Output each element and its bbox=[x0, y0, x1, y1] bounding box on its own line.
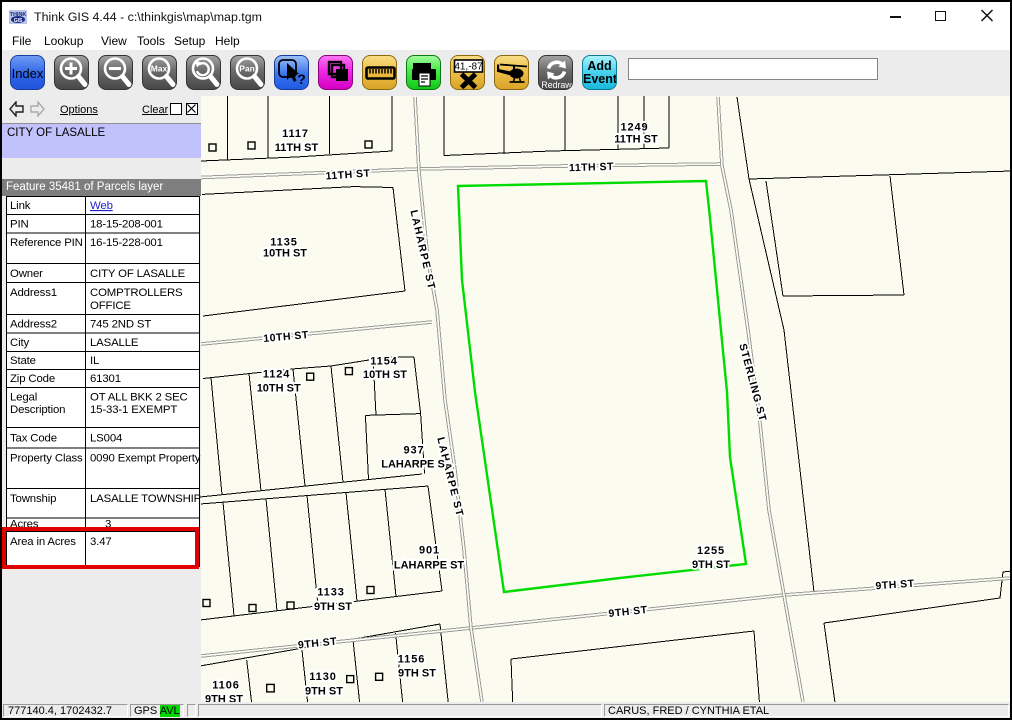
svg-text:9TH ST: 9TH ST bbox=[205, 694, 243, 703]
svg-text:City: City bbox=[10, 337, 29, 349]
svg-text:11TH ST: 11TH ST bbox=[275, 142, 319, 154]
svg-text:1106: 1106 bbox=[212, 680, 239, 692]
svg-text:LS004: LS004 bbox=[90, 433, 122, 445]
svg-text:Link: Link bbox=[10, 200, 31, 212]
svg-text:901: 901 bbox=[419, 545, 440, 557]
svg-text:Property Class: Property Class bbox=[10, 453, 83, 465]
svg-text:COMPTROLLERS: COMPTROLLERS bbox=[90, 287, 183, 299]
svg-text:10TH ST: 10TH ST bbox=[257, 383, 301, 395]
svg-text:Address2: Address2 bbox=[10, 319, 57, 331]
svg-text:LAHARPE ST: LAHARPE ST bbox=[394, 560, 465, 572]
svg-text:Redraw: Redraw bbox=[541, 80, 572, 90]
svg-text:11TH ST: 11TH ST bbox=[569, 161, 614, 175]
svg-text:1156: 1156 bbox=[398, 654, 425, 666]
svg-text:Tax Code: Tax Code bbox=[10, 433, 57, 445]
svg-text:9TH ST: 9TH ST bbox=[314, 601, 352, 613]
svg-text:Description: Description bbox=[10, 404, 65, 416]
svg-text:Reference PIN: Reference PIN bbox=[10, 237, 83, 249]
svg-text:OFFICE: OFFICE bbox=[90, 300, 131, 312]
svg-text:OT ALL BKK 2 SEC: OT ALL BKK 2 SEC bbox=[90, 392, 188, 404]
svg-text:18-15-208-001: 18-15-208-001 bbox=[90, 219, 163, 231]
svg-text:745 2ND ST: 745 2ND ST bbox=[90, 319, 151, 331]
svg-text:0090 Exempt Property: 0090 Exempt Property bbox=[90, 453, 201, 465]
svg-text:9TH ST: 9TH ST bbox=[692, 559, 730, 571]
svg-text:1124: 1124 bbox=[263, 369, 290, 381]
svg-text:1117: 1117 bbox=[282, 128, 309, 140]
svg-text:State: State bbox=[10, 355, 36, 367]
svg-text:Owner: Owner bbox=[10, 268, 43, 280]
svg-text:GIS: GIS bbox=[14, 18, 23, 24]
svg-text:CITY OF LASALLE: CITY OF LASALLE bbox=[90, 268, 186, 280]
svg-text:1255: 1255 bbox=[697, 545, 725, 557]
svg-text:LASALLE: LASALLE bbox=[90, 337, 139, 349]
svg-text:10TH ST: 10TH ST bbox=[363, 369, 407, 381]
svg-text:?: ? bbox=[297, 71, 306, 87]
svg-text:10TH ST: 10TH ST bbox=[263, 248, 307, 260]
svg-text:LAHARPE S: LAHARPE S bbox=[381, 459, 445, 471]
svg-text:1249: 1249 bbox=[620, 122, 648, 134]
svg-text:Zip Code: Zip Code bbox=[10, 373, 55, 385]
svg-text:1133: 1133 bbox=[317, 587, 344, 599]
svg-text:41,-87: 41,-87 bbox=[454, 62, 483, 73]
svg-text:Max: Max bbox=[151, 64, 168, 74]
svg-text:15-33-1 EXEMPT: 15-33-1 EXEMPT bbox=[90, 404, 177, 416]
svg-text:PIN: PIN bbox=[10, 219, 29, 231]
svg-text:Web: Web bbox=[90, 200, 113, 212]
svg-text:11TH ST: 11TH ST bbox=[614, 134, 658, 146]
svg-text:61301: 61301 bbox=[90, 373, 121, 385]
svg-text:1154: 1154 bbox=[370, 356, 397, 368]
svg-text:1130: 1130 bbox=[309, 671, 336, 683]
svg-text:9TH ST: 9TH ST bbox=[398, 668, 436, 680]
svg-text:937: 937 bbox=[403, 445, 424, 457]
svg-text:16-15-228-001: 16-15-228-001 bbox=[90, 237, 163, 249]
svg-text:Address1: Address1 bbox=[10, 287, 57, 299]
svg-text:LASALLE TOWNSHIP: LASALLE TOWNSHIP bbox=[90, 493, 201, 505]
svg-text:Pan: Pan bbox=[239, 64, 255, 74]
svg-text:Legal: Legal bbox=[10, 392, 37, 404]
svg-text:IL: IL bbox=[90, 355, 99, 367]
svg-text:9TH ST: 9TH ST bbox=[305, 686, 343, 698]
svg-text:Township: Township bbox=[10, 493, 56, 505]
